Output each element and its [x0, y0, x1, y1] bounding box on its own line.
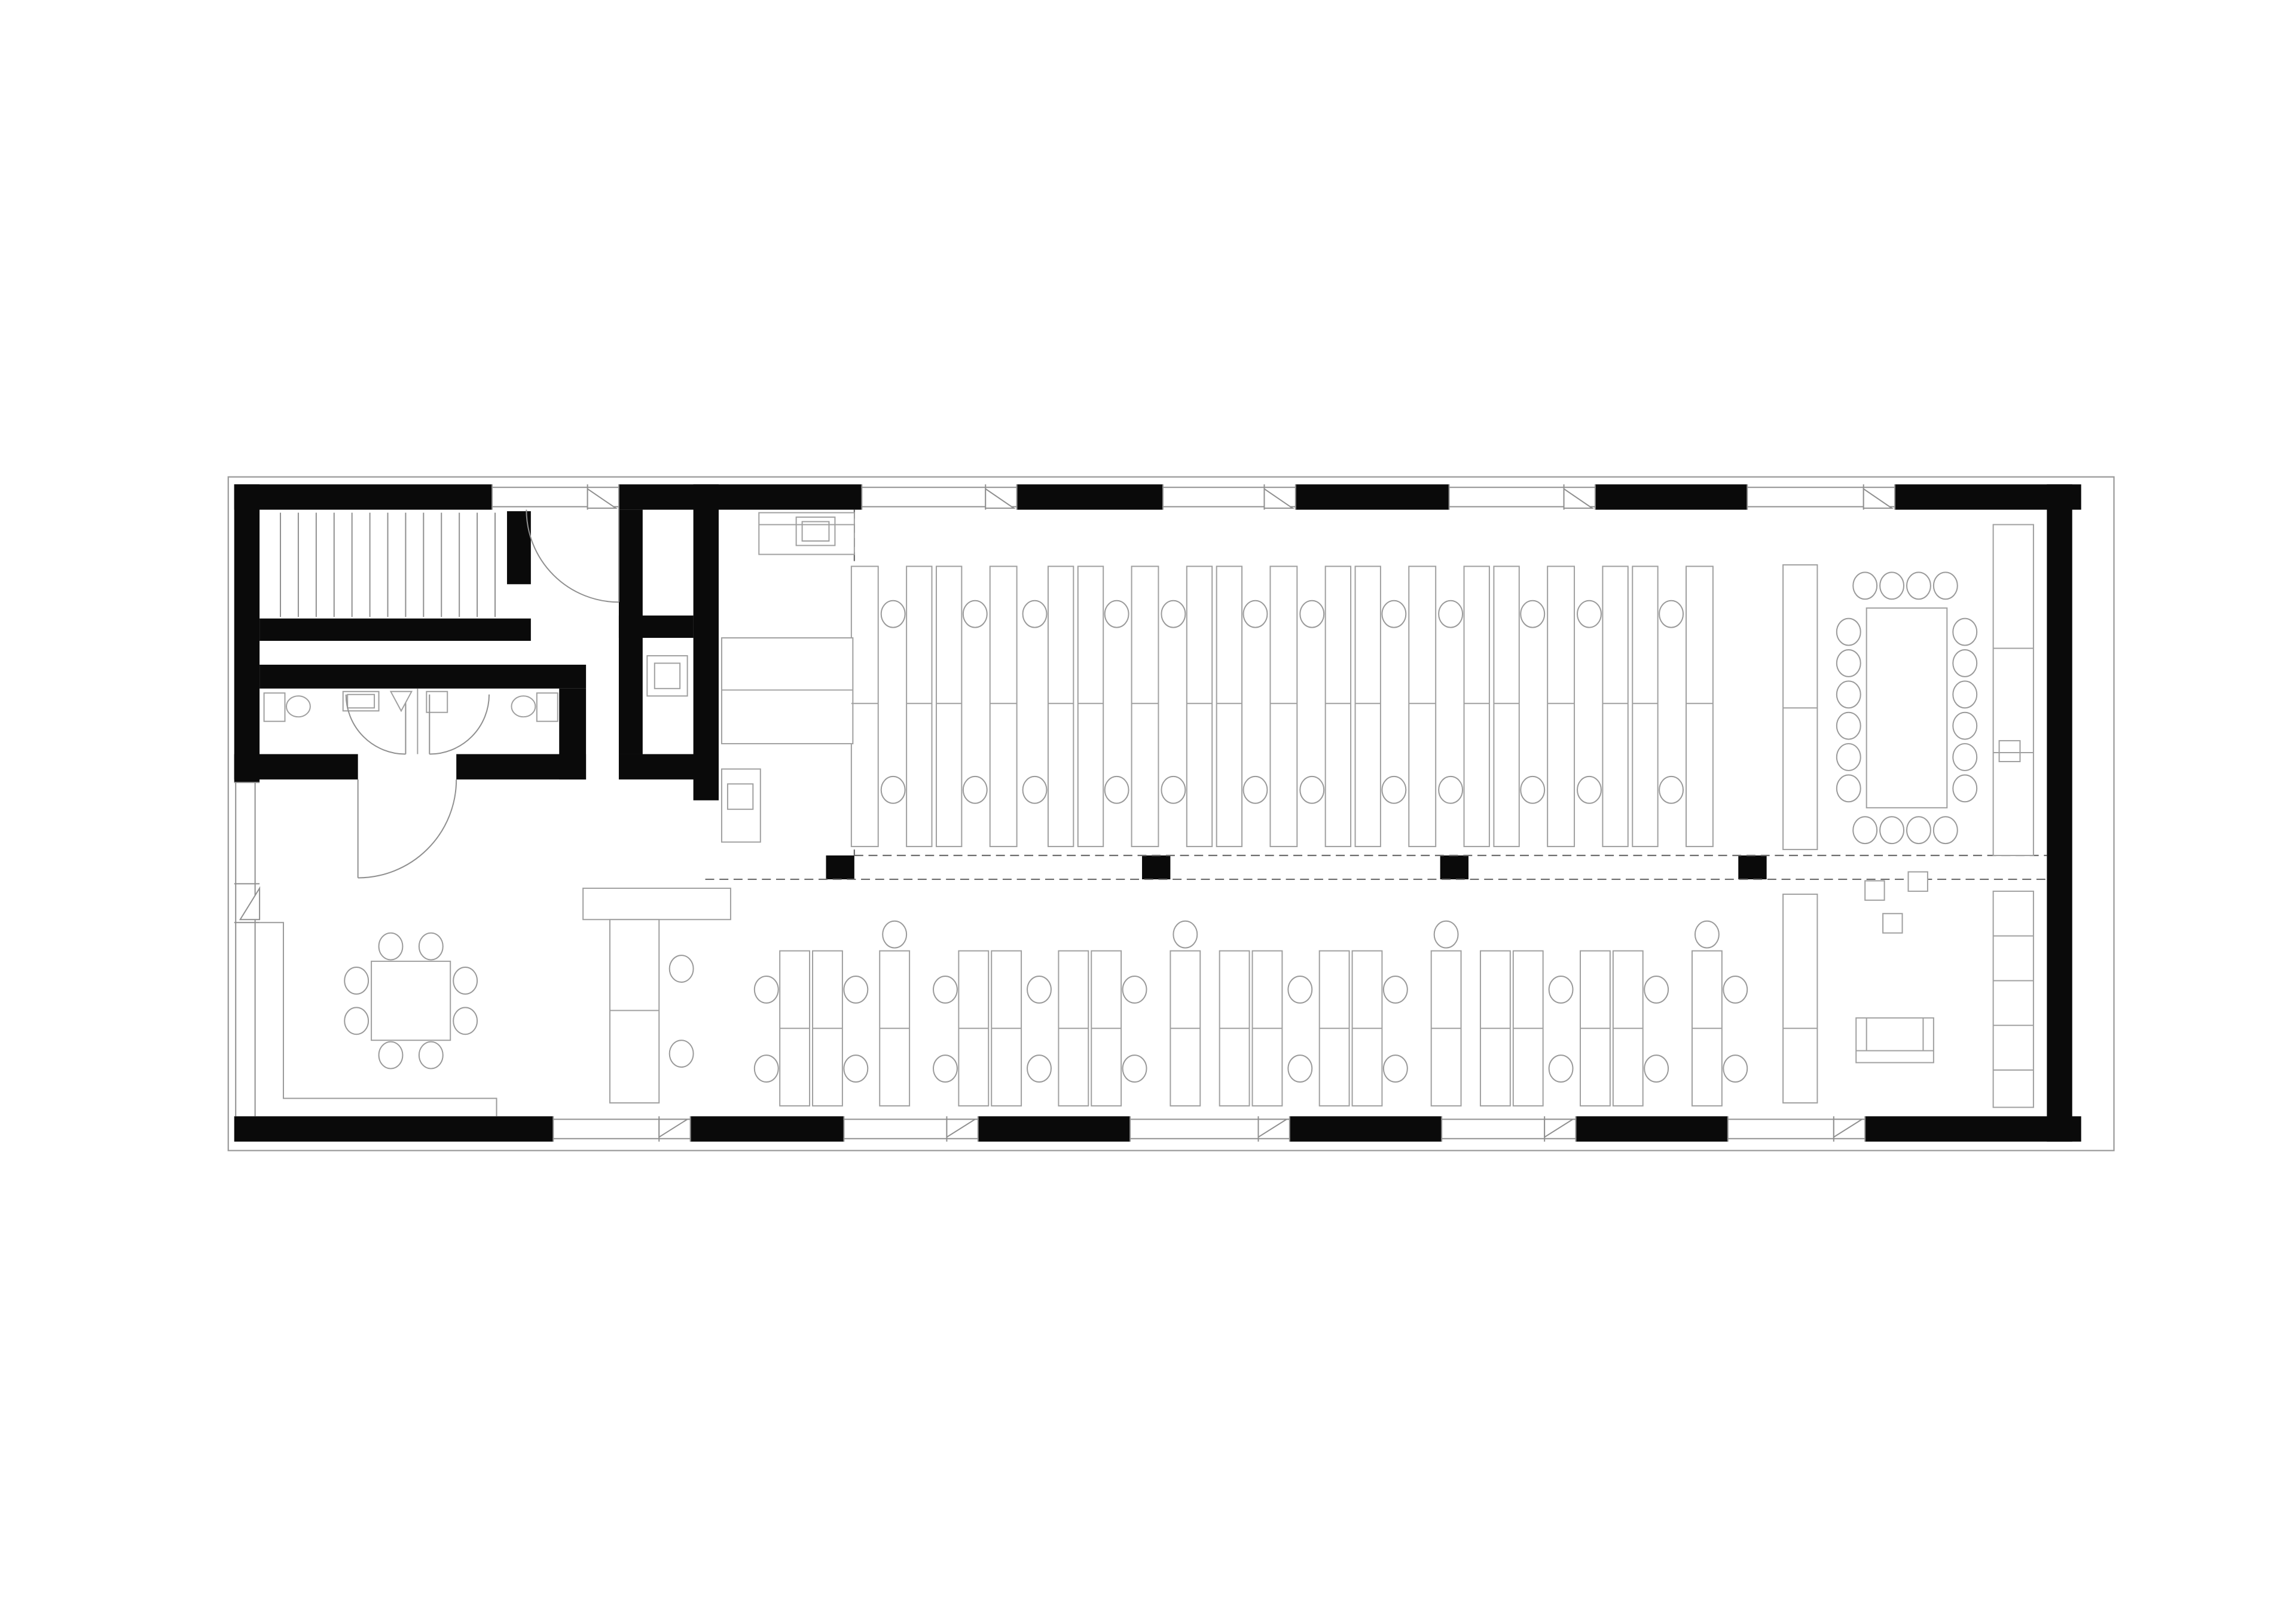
chair [1837, 650, 1861, 677]
chair [1244, 601, 1268, 628]
furniture [990, 566, 1017, 846]
stair-treads [280, 513, 495, 618]
furniture [1409, 566, 1436, 846]
furniture [728, 784, 753, 809]
chair [1439, 777, 1463, 803]
furniture [1217, 566, 1242, 846]
chair [1384, 976, 1407, 1003]
chair [1105, 601, 1129, 628]
chair [1434, 921, 1458, 948]
chair [379, 933, 403, 960]
furniture [1993, 891, 2034, 1108]
furniture [1999, 741, 2020, 762]
chair [963, 601, 987, 628]
chair [1549, 1055, 1573, 1082]
chair [755, 1055, 778, 1082]
chair [1105, 777, 1129, 803]
furniture [264, 693, 285, 721]
chair [670, 1040, 694, 1067]
chair [1027, 976, 1051, 1003]
wc-fixtures [390, 692, 411, 711]
page [0, 0, 2296, 1623]
furniture [1865, 881, 1884, 900]
chair [1837, 713, 1861, 739]
floor-plan-svg [0, 0, 2296, 1623]
furniture [1632, 566, 1657, 846]
chair [1161, 777, 1185, 803]
furniture [1993, 525, 2034, 855]
chair [1853, 572, 1877, 599]
chair [844, 976, 868, 1003]
chair [1723, 1055, 1747, 1082]
furniture [1783, 894, 1817, 1103]
chair [1880, 572, 1904, 599]
chair [1577, 777, 1601, 803]
chair [670, 955, 694, 982]
furniture [655, 663, 680, 688]
window-flag [240, 888, 259, 919]
chair [1953, 619, 1977, 646]
chair [1953, 650, 1977, 677]
chair [1300, 601, 1324, 628]
wall [1142, 855, 1170, 879]
chair [1161, 601, 1185, 628]
furniture [1048, 566, 1073, 846]
chair [1837, 775, 1861, 802]
wall [619, 754, 719, 780]
chair [1659, 601, 1683, 628]
furniture [1270, 566, 1297, 846]
chair [419, 933, 443, 960]
furniture [1883, 913, 1902, 933]
door-swing [526, 510, 619, 603]
chair [963, 777, 987, 803]
chair [1953, 744, 1977, 771]
chair [344, 967, 368, 994]
chair [1723, 976, 1747, 1003]
furniture [264, 513, 2034, 1108]
chair [1382, 601, 1406, 628]
chair [1549, 976, 1573, 1003]
chair [1659, 777, 1683, 803]
furniture [1856, 1018, 1934, 1063]
furniture [1494, 566, 1519, 846]
chair [1880, 817, 1904, 843]
chair [344, 1007, 368, 1034]
wall [1440, 855, 1468, 879]
furniture [583, 888, 731, 919]
chair [883, 921, 906, 948]
furniture [537, 693, 558, 721]
chair [933, 976, 957, 1003]
chair [1244, 777, 1268, 803]
chair [1521, 601, 1544, 628]
furniture [936, 566, 961, 846]
chair [1288, 1055, 1312, 1082]
wall [1738, 855, 1766, 879]
chair [1853, 817, 1877, 843]
furniture [1187, 566, 1212, 846]
chair [1695, 921, 1719, 948]
chair [1837, 619, 1861, 646]
furniture [1686, 566, 1713, 846]
chair [1288, 976, 1312, 1003]
toilet-bowl [511, 696, 535, 717]
furniture [1078, 566, 1103, 846]
furniture [851, 566, 878, 846]
wall [619, 616, 694, 638]
chair [1907, 817, 1931, 843]
toilet-bowls [286, 696, 535, 717]
chair [1934, 572, 1958, 599]
chair [419, 1042, 443, 1069]
chair [1644, 1055, 1668, 1082]
chair [1521, 777, 1544, 803]
urinal [390, 692, 411, 711]
chair [933, 1055, 957, 1082]
chair [1953, 681, 1977, 708]
furniture [1908, 872, 1927, 891]
chair [1439, 601, 1463, 628]
chair [1173, 921, 1197, 948]
chair [1384, 1055, 1407, 1082]
chair [453, 1007, 477, 1034]
wall [456, 754, 586, 780]
furniture [1783, 565, 1817, 849]
wall [234, 484, 259, 783]
chair [844, 1055, 868, 1082]
chair [1577, 601, 1601, 628]
furniture [1326, 566, 1351, 846]
chair [1644, 976, 1668, 1003]
wall [234, 754, 358, 780]
furniture [1602, 566, 1628, 846]
chair [1023, 777, 1047, 803]
chair [1837, 681, 1861, 708]
chair [379, 1042, 403, 1069]
chair [1934, 817, 1958, 843]
chair [453, 967, 477, 994]
furniture [1867, 608, 1947, 808]
furniture [347, 695, 374, 708]
chair [1907, 572, 1931, 599]
chair [1123, 976, 1147, 1003]
wall [259, 619, 531, 641]
chair [881, 777, 905, 803]
chair [1837, 744, 1861, 771]
wall [826, 855, 854, 879]
chair [1953, 713, 1977, 739]
toilet-bowl [286, 696, 310, 717]
furniture [1132, 566, 1159, 846]
furniture [610, 919, 659, 1103]
chair [1300, 777, 1324, 803]
chairs [344, 572, 1977, 1082]
chair [1027, 1055, 1051, 1082]
furniture [371, 961, 450, 1040]
chair [1382, 777, 1406, 803]
chair [1123, 1055, 1147, 1082]
furniture [1355, 566, 1381, 846]
wall [259, 665, 586, 689]
furniture [1464, 566, 1489, 846]
chair [755, 976, 778, 1003]
wall [2047, 484, 2072, 1141]
chair [1023, 601, 1047, 628]
furniture [906, 566, 932, 846]
chair [881, 601, 905, 628]
door-swing [358, 780, 457, 878]
chair [1953, 775, 1977, 802]
furniture [722, 638, 853, 744]
wall [694, 484, 719, 800]
furniture [1547, 566, 1574, 846]
